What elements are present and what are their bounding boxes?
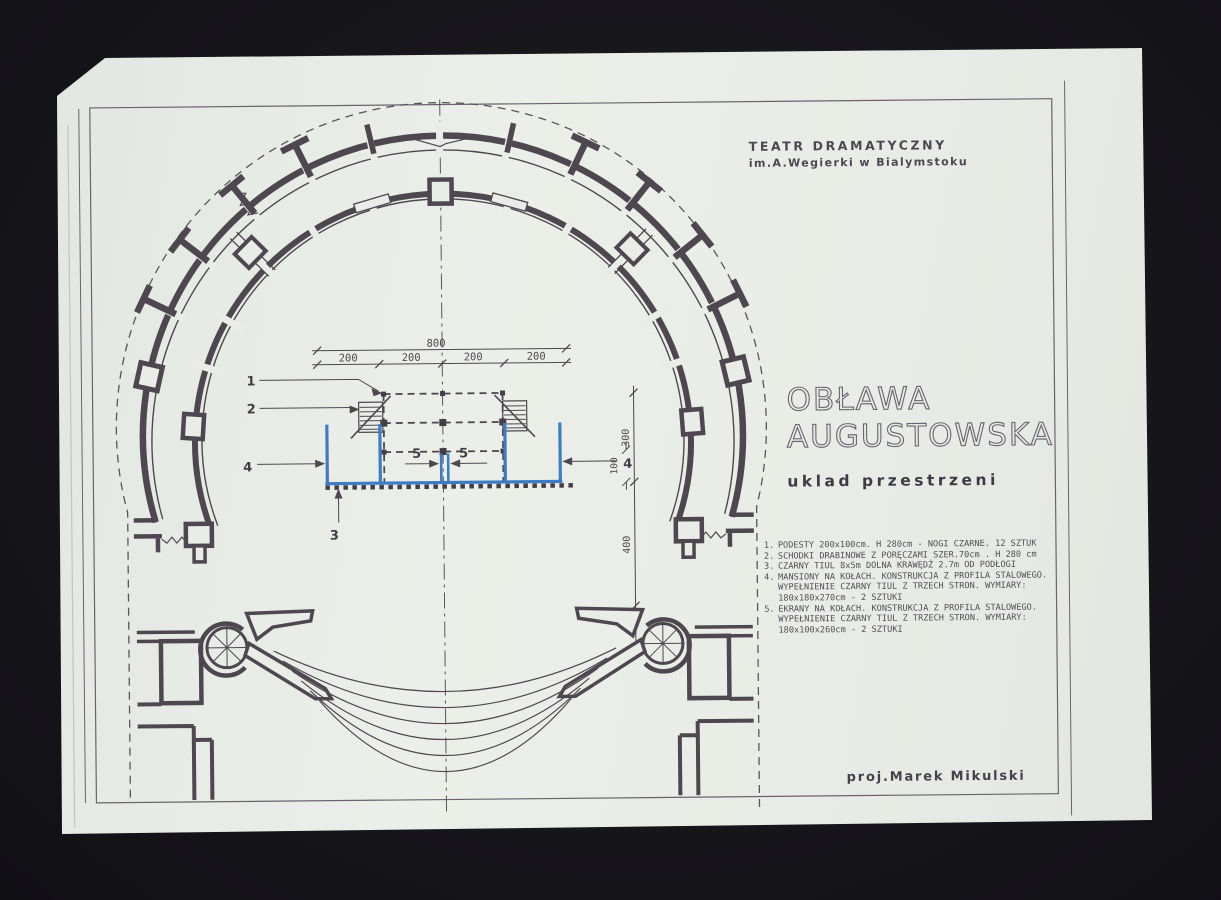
legend-item: 5. EKRANY NA KOŁACH. KONSTRUKCJA Z PROFI… xyxy=(764,602,1056,636)
theater-location: im.A.Wegierki w Bialymstoku xyxy=(749,155,968,170)
callout-2: 2 xyxy=(247,402,256,417)
callout-4-left: 4 xyxy=(243,460,252,475)
ladder-stairs-right-symbol xyxy=(495,395,535,437)
theater-name: TEATR DRAMATYCZNY xyxy=(749,137,968,154)
legend-item-text: MANSIONY NA KOŁACH. KONSTRUKCJA Z PROFIL… xyxy=(778,570,1056,604)
title-line1: OBŁAWA xyxy=(786,381,931,418)
legend-item-number: 4. xyxy=(764,572,778,604)
legend-item-number: 3. xyxy=(764,562,778,573)
legend-list: 1. PODESTY 200x100cm. H 280cm - NOGI CZA… xyxy=(764,538,1057,636)
legend-item-text: EKRANY NA KOŁACH. KONSTRUKCJA Z PROFILA … xyxy=(778,602,1056,636)
dim-100-label: 100 xyxy=(609,457,620,475)
legend-item-number: 1. xyxy=(764,541,778,552)
drawing-header: TEATR DRAMATYCZNY im.A.Wegierki w Bialym… xyxy=(749,137,968,170)
callout-leaders xyxy=(256,377,617,523)
callout-4-right: 4 xyxy=(623,457,632,472)
callout-numbers: 1 2 3 4 4 5 5 xyxy=(242,371,633,545)
dimension-line-vertical xyxy=(621,386,639,645)
dim-200-label-1: 200 xyxy=(339,352,358,364)
ladder-stairs-left-symbol xyxy=(351,396,391,438)
dim-400-label: 400 xyxy=(622,536,633,554)
dim-200-label-3: 200 xyxy=(464,351,483,363)
dim-300-label: 300 xyxy=(621,429,632,447)
photo-background: 800 200 200 200 200 300 100 xyxy=(0,0,1221,900)
dimension-labels-vertical: 300 100 400 xyxy=(609,429,633,554)
callout-5-left: 5 xyxy=(412,447,421,462)
theater-plan-drawing: 800 200 200 200 200 300 100 xyxy=(54,44,1155,839)
title-line2: AUGUSTOWSKA xyxy=(787,417,1054,456)
callout-5-right: 5 xyxy=(459,446,468,461)
callout-3: 3 xyxy=(330,529,339,544)
balcony-structure-right xyxy=(559,607,755,797)
drawing-subtitle: uklad przestrzeni xyxy=(787,471,999,491)
dim-800-label: 800 xyxy=(427,338,446,350)
sheet-content: 800 200 200 200 200 300 100 xyxy=(54,44,1155,839)
legend-item-number: 2. xyxy=(764,551,778,562)
drawing-sheet: 800 200 200 200 200 300 100 xyxy=(57,48,1152,834)
dim-200-label-4: 200 xyxy=(527,351,546,363)
legend-item: 4. MANSIONY NA KOŁACH. KONSTRUKCJA Z PRO… xyxy=(764,570,1056,604)
callout-1: 1 xyxy=(246,374,255,389)
drawing-title: OBŁAWA AUGUSTOWSKA xyxy=(786,380,1054,456)
dim-200-label-2: 200 xyxy=(402,352,421,364)
balcony-structure-left xyxy=(137,611,333,801)
designer-credit: proj.Marek Mikulski xyxy=(847,769,1026,785)
legend-item-number: 5. xyxy=(764,604,778,636)
center-screen xyxy=(441,454,448,483)
tulle-dotted-line xyxy=(325,485,575,487)
